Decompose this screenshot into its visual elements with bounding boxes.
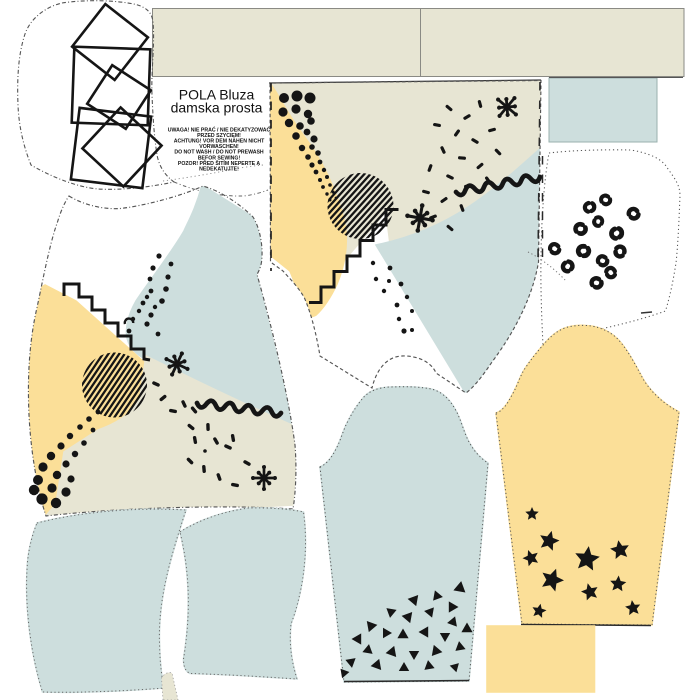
svg-text:NEDEKATUJTE!: NEDEKATUJTE! [199,166,239,172]
svg-text:damska prosta: damska prosta [171,100,263,116]
